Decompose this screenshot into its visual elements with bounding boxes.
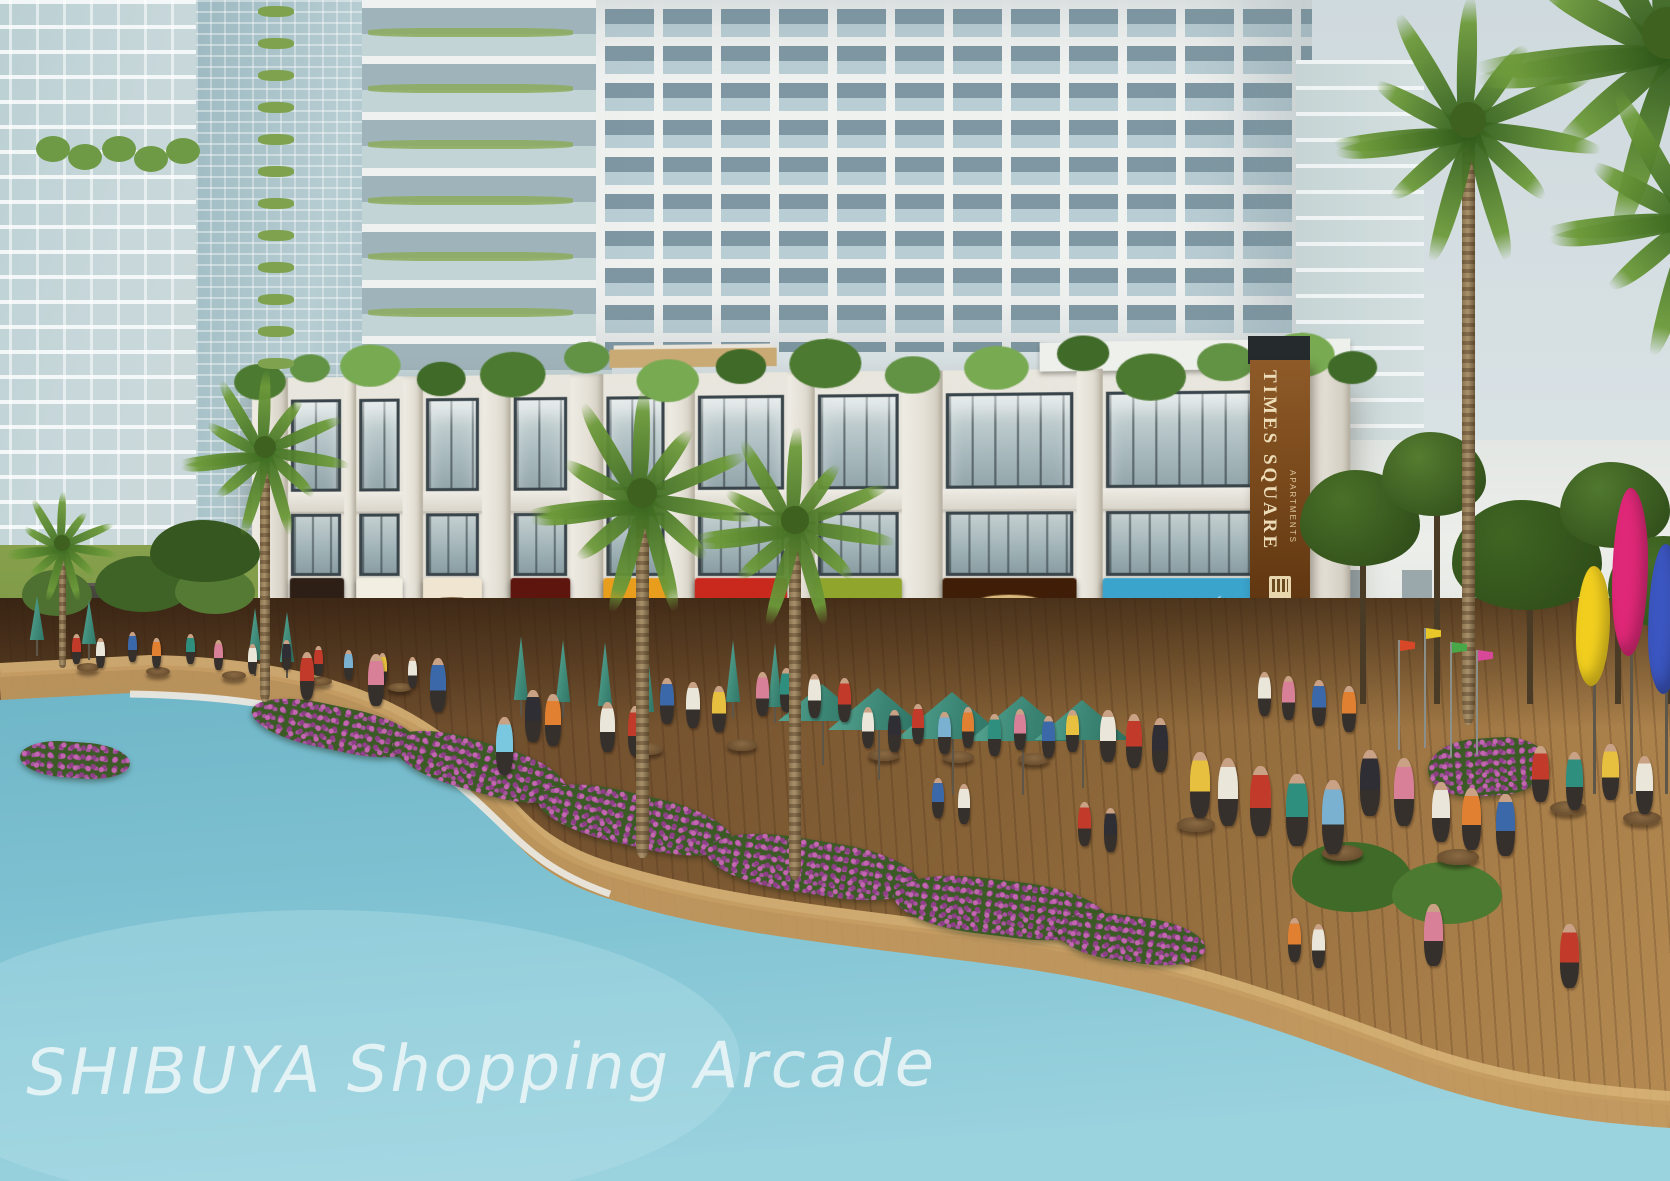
person-figure [958,784,970,824]
balcony-plants [134,146,168,172]
person-figure [128,632,137,662]
balcony-plants [258,230,294,241]
balcony-plants [368,140,573,149]
person-figure [756,672,769,716]
umbrella-pole [822,721,824,765]
person-figure [96,638,105,668]
person-figure [1394,758,1414,826]
person-figure [282,640,291,670]
balcony-plants [258,6,294,17]
person-figure [1566,752,1583,810]
balcony-plants [102,136,136,162]
balcony-plants [258,70,294,81]
balcony-plants [258,102,294,113]
person-figure [988,714,1001,756]
balcony-plants [368,84,573,93]
person-figure [962,707,974,748]
person-figure [1282,676,1295,720]
umbrella-pole [952,739,954,795]
balcony-plants [258,326,294,337]
flag-pole [1450,642,1452,757]
person-figure [1258,672,1271,716]
balcony-plants [258,38,294,49]
person-figure [938,712,951,754]
balcony-plants [258,358,294,369]
umbrella-pole [774,707,776,723]
person-figure [1288,918,1301,962]
person-figure [1432,782,1450,842]
person-figure [1532,746,1549,802]
person-figure [344,650,353,680]
person-figure [1360,750,1380,816]
cafe-table [222,671,246,680]
balcony-plants [258,198,294,209]
person-figure [1462,788,1481,850]
flag-pole [1424,628,1426,748]
person-figure [1602,744,1619,800]
person-figure [1424,904,1443,966]
palm-crown [54,535,69,550]
person-figure [496,717,513,775]
cafe-table [1437,849,1478,865]
person-figure [214,640,223,670]
person-figure [525,690,541,742]
balcony-plants [166,138,200,164]
balcony-plants [36,136,70,162]
tree-trunk [1527,600,1533,704]
person-figure [888,710,901,752]
person-figure [1636,756,1653,814]
flag-pole [1476,650,1478,755]
balcony-plants [368,252,573,261]
balcony-plants [368,196,573,205]
person-figure [545,694,561,746]
umbrella-pole [878,730,880,780]
sculpture-pole [1630,650,1633,794]
person-figure [1312,924,1325,968]
person-figure [1152,718,1168,772]
shrub [1392,862,1502,924]
palm-crown [1450,102,1486,138]
tree-trunk [1360,556,1366,704]
person-figure [186,634,195,664]
person-figure [1078,802,1091,846]
cafe-table [727,739,757,751]
person-figure [300,652,314,700]
person-figure [72,634,81,664]
flag-pole [1398,640,1400,750]
balcony-plants [258,166,294,177]
palm-trunk [1462,125,1475,725]
person-figure [1066,710,1079,752]
person-figure [1014,709,1026,750]
person-figure [1322,780,1344,854]
person-figure [152,638,161,668]
person-figure [838,678,851,722]
person-figure [862,707,874,748]
person-figure [368,654,384,706]
sculpture-pole [1593,680,1596,794]
person-figure [314,646,323,676]
balcony-plants [258,262,294,273]
balcony-plants [258,134,294,145]
umbrella-pole [520,700,522,716]
balcony-plants [368,28,573,37]
watermark-text: SHIBUYA Shopping Arcade [26,1027,938,1111]
person-figure [932,778,944,818]
tree-trunk [1434,506,1440,704]
person-figure [600,702,615,752]
person-figure [1496,794,1515,856]
person-figure [408,657,417,688]
balcony-plants [68,144,102,170]
umbrella-pole [36,640,38,656]
person-figure [686,682,700,728]
palm-trunk [789,525,801,880]
cafe-table [146,667,169,676]
cafe-table [1177,817,1215,832]
umbrella-pole [88,644,90,660]
sculpture-pole [1665,688,1668,794]
architectural-rendering-canvas: HOUSEShopFoodСофраJalapenosThaiChefAweso… [0,0,1670,1181]
person-figure [1104,808,1117,852]
person-figure [712,686,726,732]
person-figure [1560,924,1579,988]
person-figure [808,674,821,718]
palm-crown [781,506,808,533]
person-figure [1218,758,1238,826]
person-figure [1190,752,1210,818]
person-figure [912,704,924,744]
umbrella-pole [1082,740,1084,788]
person-figure [1286,774,1308,846]
person-figure [1100,710,1116,762]
person-figure [1342,686,1356,732]
person-figure [1312,680,1326,726]
person-figure [248,644,257,674]
balcony-plants [368,308,573,317]
umbrella-pole [732,702,734,718]
person-figure [1042,716,1055,758]
umbrella-pole [562,702,564,718]
person-figure [660,678,674,724]
balcony-plants [258,294,294,305]
person-figure [1126,714,1142,768]
person-figure [1250,766,1271,836]
person-figure [430,658,446,712]
